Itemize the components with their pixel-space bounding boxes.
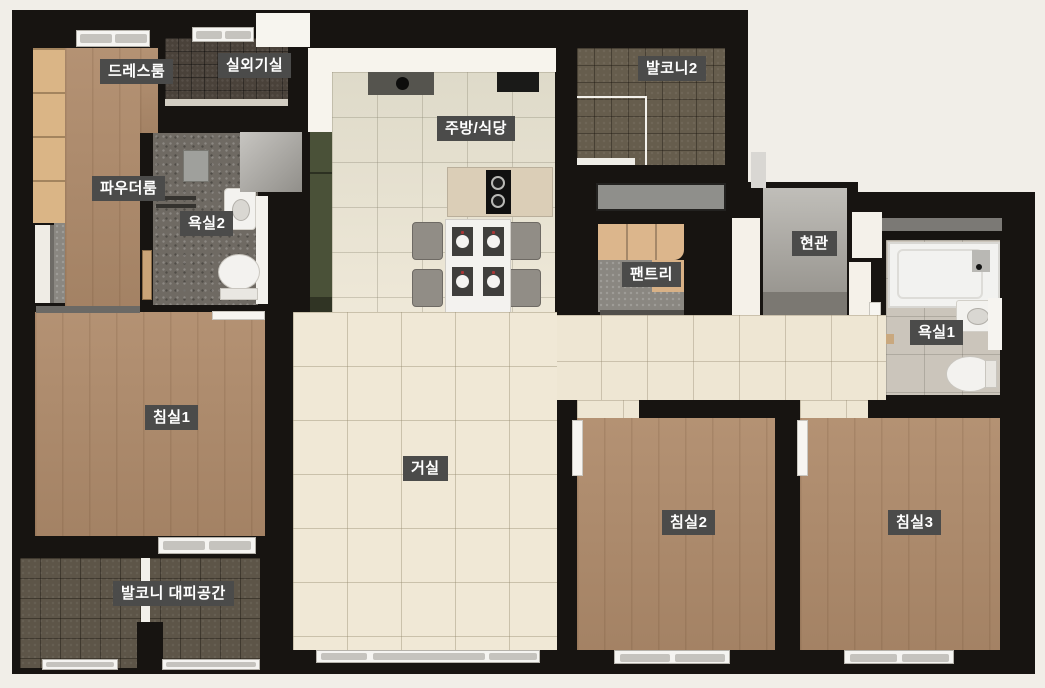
bathroom2-shower-panel xyxy=(183,150,209,182)
bathroom2-toilet-tank xyxy=(220,288,258,300)
label-balcony2: 발코니2 xyxy=(638,56,706,81)
label-bedroom1: 침실1 xyxy=(145,405,198,430)
bedroom2-door-leaf xyxy=(572,420,583,476)
bathroom1-partition xyxy=(988,298,1002,350)
bedroom2-window xyxy=(614,650,730,664)
bathroom2-toilet-bowl xyxy=(218,254,260,290)
dining-table xyxy=(445,219,511,313)
outdoor-unit-room-sill xyxy=(165,99,288,106)
label-outdoor-unit-room: 실외기실 xyxy=(218,53,291,78)
label-balcony-refuge: 발코니 대피공간 xyxy=(113,581,234,606)
utility-alcove xyxy=(240,132,302,192)
label-dressroom: 드레스룸 xyxy=(100,59,173,84)
label-pantry: 팬트리 xyxy=(622,262,681,287)
shoe-closet-left xyxy=(732,218,760,318)
bedroom3-door-opening xyxy=(800,400,868,418)
label-kitchen-dining: 주방/식당 xyxy=(437,116,515,141)
hallway-floor xyxy=(555,315,886,400)
dining-chair xyxy=(412,222,443,260)
balcony-refuge-window-right xyxy=(162,659,260,670)
dining-chair xyxy=(412,269,443,307)
dining-chair xyxy=(507,222,541,260)
living-room-window xyxy=(316,650,540,663)
label-bathroom2: 욕실2 xyxy=(180,211,233,236)
bedroom1-balcony-window xyxy=(158,537,256,554)
living-room-floor xyxy=(293,312,557,650)
label-entrance: 현관 xyxy=(792,231,837,256)
ac-unit-platform xyxy=(596,183,726,211)
label-bedroom3: 침실3 xyxy=(888,510,941,535)
bathroom2-towel-bar-2 xyxy=(156,204,196,208)
balcony2-door-sill xyxy=(577,158,635,165)
kitchen-counter-top xyxy=(308,48,556,72)
bathroom1-closet xyxy=(852,212,882,258)
powder-room-vanity xyxy=(35,225,51,303)
cooktop xyxy=(486,170,511,214)
dining-chair xyxy=(507,269,541,307)
label-bedroom2: 침실2 xyxy=(662,510,715,535)
kitchen-counter-left xyxy=(308,48,334,132)
bathtub-faucet xyxy=(972,250,990,272)
pantry-shelf xyxy=(598,224,684,260)
bedroom1-door-leaf xyxy=(212,311,265,320)
label-powder-room: 파우더룸 xyxy=(92,176,165,201)
label-living-room: 거실 xyxy=(403,456,448,481)
front-door-exterior xyxy=(751,152,766,188)
kitchen-appliance-counter xyxy=(497,72,539,92)
bedroom1-sliding-door-rail xyxy=(36,306,140,313)
balcony-refuge-wall-stub xyxy=(137,622,163,668)
balcony-refuge-window-left xyxy=(42,659,118,670)
bathroom1-toilet-tank xyxy=(985,360,997,388)
bedroom3-window xyxy=(844,650,954,664)
outdoor-unit-room-window xyxy=(192,27,254,42)
shoe-closet-right xyxy=(849,262,871,317)
balcony2-door-swing xyxy=(577,96,647,165)
bedroom2-door-opening xyxy=(577,400,639,418)
dressroom-wardrobe xyxy=(33,48,65,223)
bathroom1-window-bar xyxy=(880,218,1002,231)
floor-plan: 드레스룸 실외기실 파우더룸 욕실2 주방/식당 발코니2 팬트리 현관 욕실1… xyxy=(0,0,1045,688)
bathroom2-door-leaf xyxy=(142,250,152,300)
dressroom-window xyxy=(76,30,150,47)
label-bathroom1: 욕실1 xyxy=(910,320,963,345)
top-opening xyxy=(256,13,310,47)
bedroom3-door-leaf xyxy=(797,420,808,476)
kitchen-sink-counter xyxy=(368,72,434,95)
